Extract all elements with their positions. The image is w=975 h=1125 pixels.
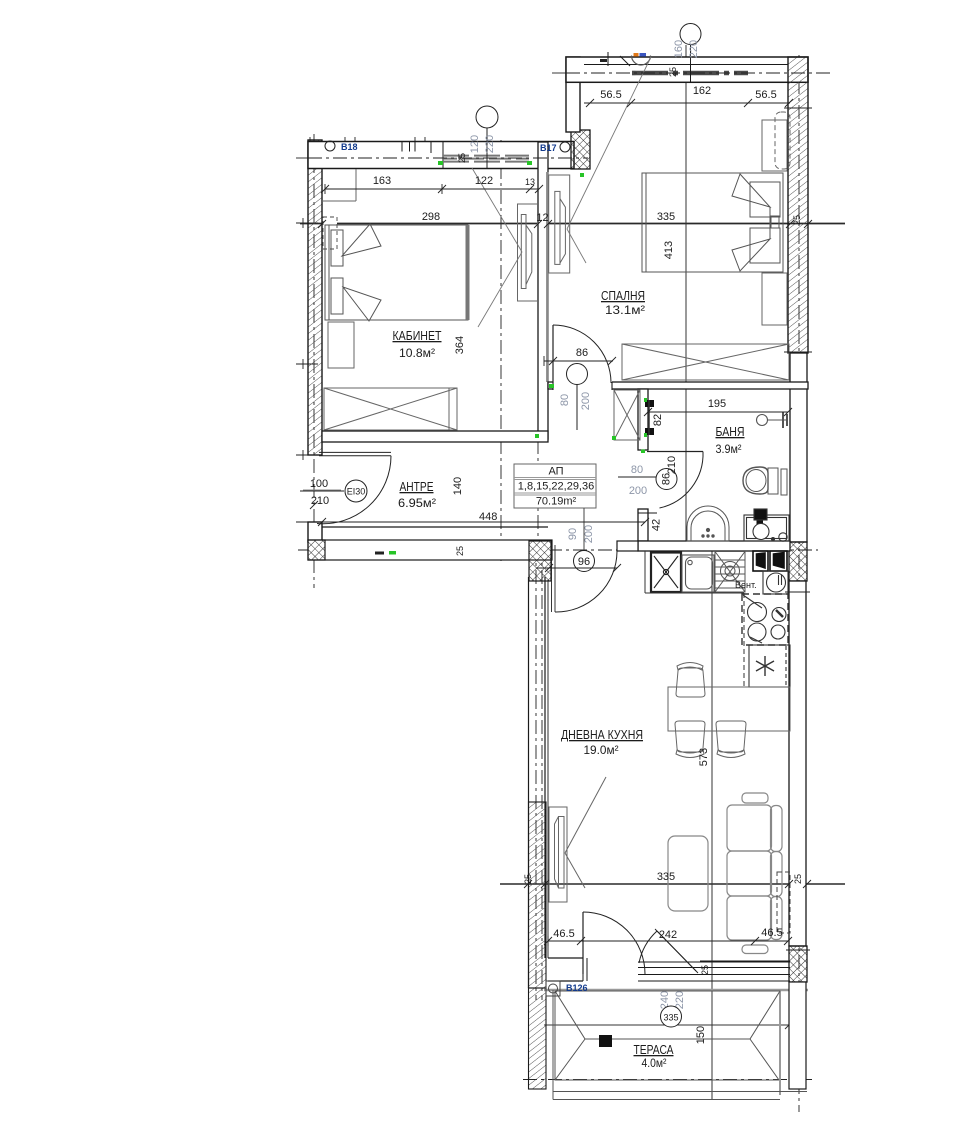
svg-text:335: 335 (657, 211, 675, 223)
svg-text:4.0м²: 4.0м² (642, 1056, 667, 1070)
svg-text:96: 96 (578, 556, 590, 568)
svg-text:В18: В18 (341, 142, 358, 152)
svg-text:90: 90 (567, 528, 579, 540)
svg-text:БАНЯ: БАНЯ (716, 424, 745, 439)
svg-text:СПАЛНЯ: СПАЛНЯ (601, 288, 645, 303)
svg-text:АНТРЕ: АНТРЕ (400, 479, 434, 494)
svg-text:1,8,15,22,29,36: 1,8,15,22,29,36 (518, 481, 594, 493)
svg-text:ТЕРАСА: ТЕРАСА (634, 1042, 674, 1057)
svg-text:195: 195 (708, 398, 726, 410)
svg-text:В126: В126 (566, 983, 588, 993)
svg-text:КАБИНЕТ: КАБИНЕТ (393, 328, 442, 343)
svg-text:86: 86 (660, 473, 672, 485)
svg-text:448: 448 (479, 511, 497, 523)
svg-text:200: 200 (580, 392, 592, 410)
svg-text:100: 100 (310, 478, 328, 490)
svg-text:56.5: 56.5 (755, 89, 776, 101)
svg-text:82: 82 (652, 414, 664, 426)
svg-text:335: 335 (663, 1013, 678, 1023)
svg-text:13: 13 (525, 177, 535, 187)
svg-text:3.9м²: 3.9м² (716, 442, 742, 456)
svg-text:Вент.: Вент. (735, 580, 757, 590)
svg-text:335: 335 (657, 871, 675, 883)
svg-text:12: 12 (536, 212, 548, 224)
svg-text:220: 220 (688, 40, 700, 58)
svg-text:19.0м²: 19.0м² (584, 743, 619, 757)
svg-text:220: 220 (674, 991, 686, 1009)
svg-text:80: 80 (631, 464, 643, 476)
svg-text:25: 25 (455, 546, 465, 556)
svg-text:70.19m²: 70.19m² (536, 496, 577, 508)
svg-text:46.5: 46.5 (553, 928, 574, 940)
svg-text:46.5: 46.5 (761, 927, 782, 939)
svg-text:EI30: EI30 (347, 487, 366, 497)
svg-text:298: 298 (422, 211, 440, 223)
svg-text:25: 25 (668, 67, 678, 77)
svg-text:80: 80 (559, 394, 571, 406)
svg-text:220: 220 (484, 135, 496, 153)
svg-text:6.95м²: 6.95м² (398, 496, 436, 510)
svg-text:13.1м²: 13.1м² (605, 303, 645, 317)
svg-text:120: 120 (469, 135, 481, 153)
svg-text:25: 25 (457, 153, 467, 163)
svg-text:25: 25 (793, 874, 803, 884)
svg-text:200: 200 (629, 485, 647, 497)
svg-text:573: 573 (698, 748, 710, 766)
svg-text:163: 163 (373, 175, 391, 187)
svg-text:42: 42 (651, 519, 663, 531)
svg-text:160: 160 (673, 40, 685, 58)
svg-text:150: 150 (695, 1026, 707, 1044)
svg-text:242: 242 (659, 929, 677, 941)
svg-text:25: 25 (700, 965, 710, 975)
svg-text:ДНЕВНА КУХНЯ: ДНЕВНА КУХНЯ (561, 727, 643, 742)
svg-text:200: 200 (583, 525, 595, 543)
svg-text:56.5: 56.5 (600, 89, 621, 101)
svg-text:25: 25 (792, 215, 802, 225)
svg-text:162: 162 (693, 85, 711, 97)
svg-text:413: 413 (663, 241, 675, 259)
svg-text:АП: АП (548, 466, 563, 478)
svg-text:10.8м²: 10.8м² (399, 346, 435, 360)
svg-text:86: 86 (576, 347, 588, 359)
svg-text:25: 25 (523, 874, 533, 884)
svg-text:210: 210 (666, 456, 678, 474)
svg-text:122: 122 (475, 175, 493, 187)
svg-text:В17: В17 (540, 143, 557, 153)
svg-text:140: 140 (452, 477, 464, 495)
svg-text:364: 364 (454, 336, 466, 354)
